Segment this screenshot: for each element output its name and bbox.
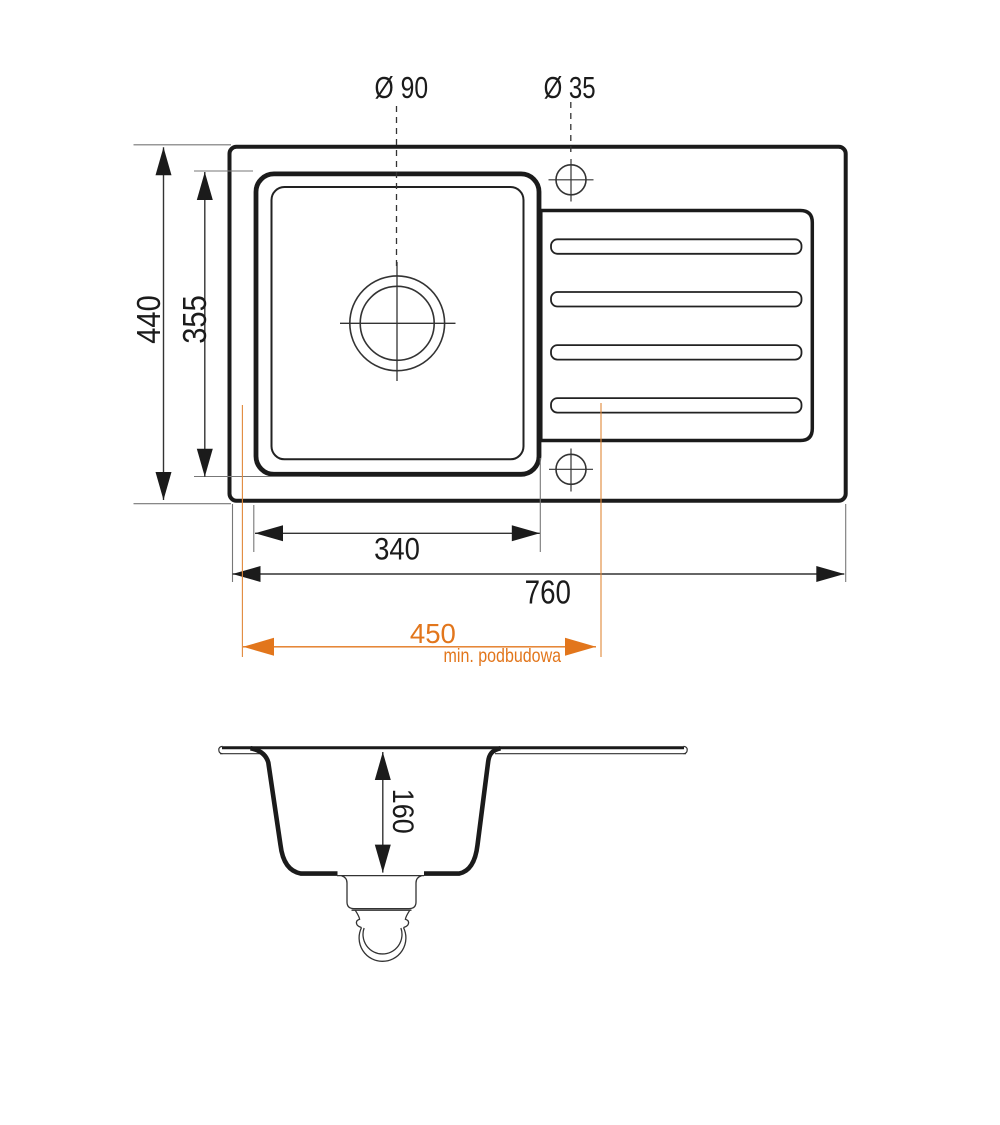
- svg-text:Ø 35: Ø 35: [544, 71, 596, 105]
- svg-text:760: 760: [525, 574, 571, 611]
- svg-text:Ø 90: Ø 90: [375, 71, 429, 105]
- svg-text:min. podbudowa: min. podbudowa: [444, 645, 562, 667]
- svg-text:440: 440: [130, 295, 167, 344]
- svg-text:160: 160: [386, 789, 419, 834]
- svg-text:355: 355: [176, 295, 213, 344]
- svg-text:340: 340: [374, 530, 420, 566]
